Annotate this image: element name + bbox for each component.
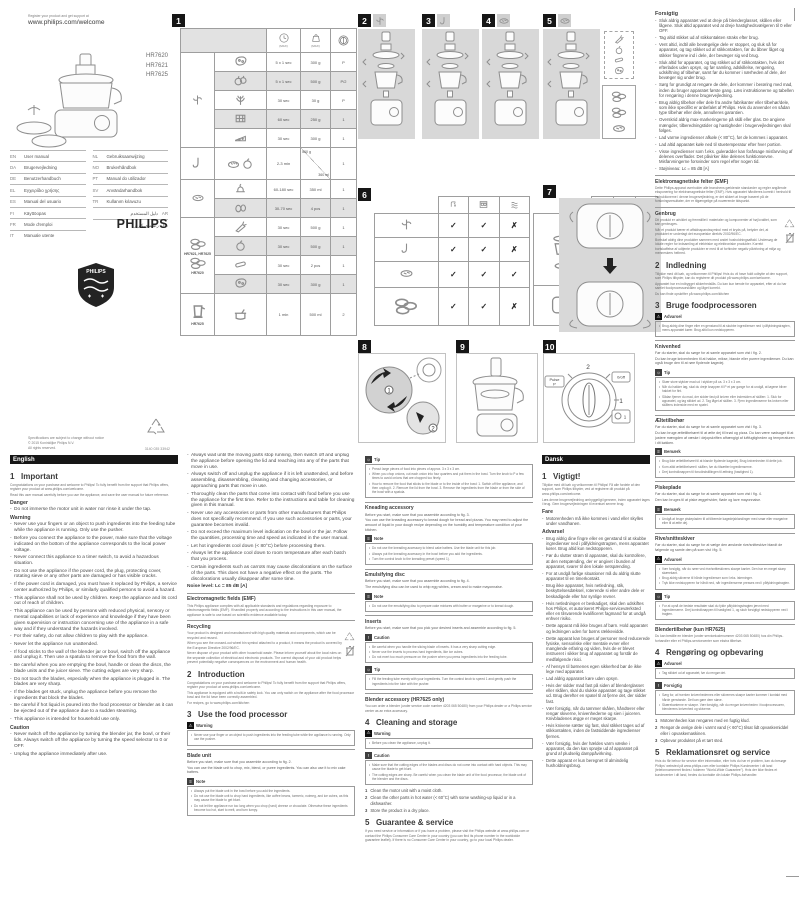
figure-2-badge: 2 xyxy=(358,14,371,27)
warning-item: This appliance shall not be used by chil… xyxy=(10,596,178,608)
inserts-heading: Inserts xyxy=(365,615,533,625)
vigtigt-intro-1: Tillykke med dit køb og velkommen til Ph… xyxy=(542,483,650,496)
table-row: HR7621, HR7625 HR7620 30 sec 500 g 1 xyxy=(181,218,357,237)
cucumber-icon xyxy=(234,258,247,271)
speed-cell: 1 xyxy=(331,180,357,199)
manual-page: { "meta": { "register_line": "Register y… xyxy=(0,0,802,904)
caution-item: Never use any accessories or parts from … xyxy=(187,511,355,529)
processing-time-header: (MAX) xyxy=(267,29,301,53)
step: 1Clean the motor unit with a moist cloth… xyxy=(365,788,533,793)
bruge-heading: 3Bruge foodprocessoren xyxy=(655,301,795,310)
speed-cell: 1 xyxy=(331,218,357,237)
genbrug-p2: Når et produkt bærer et affaldsspandssym… xyxy=(655,228,795,237)
amount-cell: 500 g xyxy=(301,237,331,256)
blendertilbehor-heading: Blendertilbehør (kun HR7625) xyxy=(655,624,795,634)
blade-icon xyxy=(400,218,413,231)
meat-icon xyxy=(234,55,247,68)
caution-list: Make sure that the cutting edges of the … xyxy=(369,763,529,781)
vigtigt-intro-2: Læs denne brugervejledning omhyggeligt i… xyxy=(542,498,650,507)
section-number: 4 xyxy=(365,718,376,727)
rengoring-heading: 4Rengøring og opbevaring xyxy=(655,648,795,657)
advarsel-box: ⚠Advarsel Vær forsigtig, når du rører ve… xyxy=(655,556,795,590)
discs-icon xyxy=(393,296,419,316)
blender-accessory-heading: Blender accessory (HR7625 only) xyxy=(365,693,533,703)
emulsifying-p1: Before you start, make sure that you ass… xyxy=(365,579,533,584)
caution-icon: ! xyxy=(365,634,372,641)
language-code: FR xyxy=(10,222,24,227)
warning-item: Never use your finger or an object to pu… xyxy=(191,733,351,741)
emf-da-text: Dette Philips-apparat overholder alle br… xyxy=(655,186,795,204)
english-column-2: Always wait until the moving parts stop … xyxy=(187,453,355,900)
introduction-p2: This appliance is equipped with a built-… xyxy=(187,691,355,700)
fare-heading: Fare xyxy=(542,509,650,515)
advarsel-item: Hvis der sidder mad fast på siden af ble… xyxy=(542,683,650,704)
cloth-icon xyxy=(510,200,519,209)
language-label: Kullanım kılavuzu xyxy=(107,199,169,204)
tap-water-header xyxy=(438,197,468,214)
advarsel-item: Vær forsigtig, når du rører ved rive/sni… xyxy=(659,567,791,575)
empty-cell xyxy=(375,197,439,214)
document-number: 3140 035 33942 xyxy=(118,447,170,451)
amount-cell: 300 g xyxy=(301,275,331,294)
crossed-bin-icon xyxy=(345,645,355,657)
note-item: Do not let the appliance run too long wh… xyxy=(191,804,351,812)
language-code: AR xyxy=(162,211,168,217)
bemaerk-item: Kom altid æltetilbehøret i skålen, før d… xyxy=(659,465,791,469)
quantity-table: (MAX) (MAX) 5 x 1 sec 300 g P 5 x 1 sec … xyxy=(180,28,357,336)
forsigtig-item: Sluk altid for apparatet, og tag stikket… xyxy=(655,60,795,81)
note-icon: ≡ xyxy=(655,448,662,455)
box-label: Note xyxy=(374,594,383,599)
dough-icon xyxy=(241,157,254,170)
section-title: Bruge foodprocessoren xyxy=(666,301,757,310)
language-code: NO xyxy=(93,165,107,170)
advarsel-list: Brug aldrig dine fingre eller en genstan… xyxy=(542,536,650,769)
box-label: Bemærk xyxy=(664,449,681,454)
discs-cell xyxy=(375,288,439,326)
warning-icon: ⚠ xyxy=(365,730,372,737)
advarsel-item: Hvis netledningen er beskadiget, skal de… xyxy=(542,601,650,622)
language-code: ES xyxy=(10,199,24,204)
language-row: FRMode d'emploi xyxy=(10,218,86,229)
eggs-icon xyxy=(234,201,247,214)
disc-insert-step-icon xyxy=(608,90,630,103)
language-label: Brukerhåndbok xyxy=(107,165,169,170)
indledning-p1: Tillykke med dit køb, og velkommen til P… xyxy=(655,272,795,281)
step: 3Store the product in a dry place. xyxy=(365,808,533,813)
caution-heading: Caution xyxy=(10,725,178,731)
food-icon-cell xyxy=(215,180,267,199)
forsigtig-item: Brug aldrig tilbehør eller dele fra andr… xyxy=(655,100,795,116)
warning-item: Be careful when you are emptying the bow… xyxy=(10,663,178,675)
advarsel-box: ⚠Advarsel Tag stikket ud af apparatet, f… xyxy=(655,660,795,679)
blendertilbehor-text: Du kan bestille en blender (under servic… xyxy=(655,634,795,643)
box-label: Tip xyxy=(374,667,380,672)
herbs-icon xyxy=(234,93,247,106)
blade-unit-group-cell xyxy=(181,53,215,148)
tip-item: How to remove the food that sticks to th… xyxy=(369,482,529,495)
language-code: DA xyxy=(10,165,24,170)
kneading-hook-icon xyxy=(400,242,413,255)
language-code: SV xyxy=(93,188,107,193)
section-title: Important xyxy=(21,472,58,481)
warning-item: This appliance is intended for household… xyxy=(10,717,178,723)
food-icon-cell xyxy=(215,237,267,256)
speed-cell: P xyxy=(331,91,357,110)
box-label: Note xyxy=(196,779,205,784)
note-item: Do not use the emulsifying disc to prepa… xyxy=(369,604,529,608)
speed-cell: 1 xyxy=(331,256,357,275)
aelte-heading: Æltetilbehør xyxy=(655,415,795,425)
food-icon-cell xyxy=(215,110,267,129)
tip-item: Når du hakker løg, skal du dreje knappen… xyxy=(659,385,791,393)
assembly-blade-diagram xyxy=(358,29,415,139)
speed-cell: 1 xyxy=(331,275,357,294)
time-cell: 30 sec xyxy=(267,218,301,237)
forsigtig-item: Tag altid stikket ud af stikkontakten st… xyxy=(655,35,795,40)
blender-group-cell: HR7625 xyxy=(181,294,215,336)
time-cell: 1 min xyxy=(267,294,301,336)
copyright-block: Specifications are subject to change wit… xyxy=(28,436,128,450)
carrot-icon xyxy=(614,34,624,44)
tip-item: When you chop onions, cut each onion int… xyxy=(369,472,529,480)
tip-item: Precut large pieces of food into pieces … xyxy=(369,467,529,471)
amount-cell: 500 g xyxy=(301,218,331,237)
tip-item: For at opnå de bedste resultater skal du… xyxy=(659,604,791,617)
knivenhed-p2: Du kan bruge knivenheden til at hakke, m… xyxy=(655,357,795,366)
emulsifying-chip xyxy=(497,14,510,27)
discs-model-label: HR7620 xyxy=(181,271,214,275)
time-cell: 5 x 1 sec xyxy=(267,72,301,91)
warning-item: Never use your fingers or an object to p… xyxy=(10,522,178,534)
warning-list: Before you clean the appliance, unplug i… xyxy=(369,741,529,745)
recycling-block: Your product is designed and manufacture… xyxy=(187,631,355,664)
recycling-p1: Your product is designed and manufacture… xyxy=(187,631,355,640)
section-number: 5 xyxy=(365,818,376,827)
bemaerk-item: Brug ikke æltetilbehøret til at blande f… xyxy=(659,459,791,463)
figure-9-badge: 9 xyxy=(456,340,469,353)
use-heading: 3Use the food processor xyxy=(187,710,355,719)
speed-cell: P/2 xyxy=(331,72,357,91)
amount-header: (MAX) xyxy=(301,29,331,53)
advarsel-item: Dette apparat må ikke bruges af børn. Ho… xyxy=(542,623,650,633)
note-item: Always put the blade unit in the bowl be… xyxy=(191,789,351,793)
food-icon-cell xyxy=(215,256,267,275)
advarsel-item: Brug ikke apparatet, hvis netledning, st… xyxy=(542,583,650,599)
section-number: 2 xyxy=(655,261,666,270)
caution-item: Be careful when you handle the slicing b… xyxy=(369,645,529,649)
warning-item: If the power cord is damaged, you must h… xyxy=(10,582,178,594)
advarsel-item: Vær forsigtig, hvis der hældes varm væsk… xyxy=(542,741,650,757)
step: 3Opbevar produktet på et tørt sted. xyxy=(655,738,795,743)
note-box: ≡Note Always put the blade unit in the b… xyxy=(187,778,355,816)
cheese-icon xyxy=(614,66,624,76)
mark-cell: ✓ xyxy=(469,238,499,262)
assembly-inserts-diagram xyxy=(543,29,600,139)
step-text: Clean the other parts in hot water (< 60… xyxy=(370,795,533,806)
figure-3-panel xyxy=(422,29,479,139)
introduction-heading: 2Introduction xyxy=(187,670,355,679)
recycling-p2: When you see the crossed-out wheel bin s… xyxy=(187,641,355,650)
recycling-heading: Recycling xyxy=(187,620,355,630)
danger-heading: Danger xyxy=(10,500,178,506)
off-label-box: 0/off xyxy=(612,372,630,382)
language-row: DEBenutzerhandbuch xyxy=(10,173,86,184)
caution-item: Always wait until the moving parts stop … xyxy=(187,453,355,471)
advarsel-item: Af hensyn til børnenes egen sikkerhed bø… xyxy=(542,664,650,674)
warning-icon: ⚠ xyxy=(655,556,662,563)
weight-icon xyxy=(311,33,321,43)
crossed-bin-icon xyxy=(785,232,795,244)
note-list: Always put the blade unit in the bowl be… xyxy=(191,789,351,812)
potato-icon xyxy=(614,45,624,55)
section-title: Guarantee & service xyxy=(376,818,453,827)
caution-item: Do not exceed the maximum level indicati… xyxy=(187,530,355,542)
indledning-heading: 2Indledning xyxy=(655,261,795,270)
speed-cell: 1 xyxy=(331,148,357,180)
advarsel-list: Vær forsigtig, når du rører ved rive/sni… xyxy=(659,567,791,586)
discs-icon xyxy=(189,237,207,251)
note-box: ≡Note Do not use the kneading accessory … xyxy=(365,535,533,565)
forsigtig-item: Sørg for, at hverken knivenhedernes elle… xyxy=(659,693,791,701)
box-label: Warning xyxy=(374,731,391,736)
tip-icon: ☼ xyxy=(655,369,662,376)
emf-text: This Philips appliance complies with all… xyxy=(187,604,355,617)
mark-cell: ✓ xyxy=(469,262,499,288)
pulse-label-box: Pulse P xyxy=(545,376,564,387)
shield-brand-text: PHILIPS xyxy=(86,269,106,275)
language-label: Käyttöopas xyxy=(24,211,86,216)
time-cell: 30 sec xyxy=(267,275,301,294)
caution-item: Unplug the appliance immediately after u… xyxy=(10,752,178,758)
section-title: Use the food processor xyxy=(198,710,287,719)
caution-continued-list: Always wait until the moving parts stop … xyxy=(187,453,355,582)
warning-item: This appliance can be used by persons wi… xyxy=(10,609,178,632)
register-block: Register your product and get support at… xyxy=(28,14,168,26)
forsigtig-heading: Forsigtig xyxy=(655,11,795,17)
table-row: HR7625 1 min 500 ml 2 xyxy=(181,294,357,336)
knivenhed-heading: Knivenhed xyxy=(655,340,795,350)
note-icon: ≡ xyxy=(655,506,662,513)
piske-heading: Piskeplade xyxy=(655,481,795,491)
language-code: DE xyxy=(10,176,24,181)
time-cell: 60 sec xyxy=(267,110,301,129)
mark-cell: ✓ xyxy=(438,288,468,326)
caution-item: The cutting edges are sharp. Be careful … xyxy=(369,773,529,781)
advarsel-list: Brug aldrig dine fingre eller en genstan… xyxy=(659,324,791,332)
forsigtig-item: Lad varme ingredienser afkøle (< 80°C), … xyxy=(655,135,795,140)
blade-icon xyxy=(190,94,205,106)
step-text: Motorenheden kan rengøres med en fugtig … xyxy=(660,718,749,723)
section-number: 2 xyxy=(187,670,198,679)
section-number: 3 xyxy=(187,710,198,719)
warning-icon: ⚠ xyxy=(655,660,662,667)
figure-6-badge: 6 xyxy=(358,188,371,201)
forsigtig-list: Sluk aldrig apparatet ved at dreje på bl… xyxy=(655,18,795,172)
advarsel-heading: Advarsel xyxy=(542,529,650,535)
forsigtig-item: Sørg for grundigt at rengøre de dele, de… xyxy=(655,82,795,98)
recycle-icon xyxy=(146,416,166,436)
discs-group-cell: HR7621, HR7625 HR7620 xyxy=(181,218,215,294)
advarsel-item: Lad aldrig apparatet køre uden opsyn. xyxy=(542,676,650,681)
amount-cell: 350 ml xyxy=(301,180,331,199)
emulsifying-cell xyxy=(375,262,439,288)
amount-cell: 500 ml xyxy=(301,294,331,336)
cloth-header xyxy=(499,197,529,214)
amount-cell: 30 g xyxy=(301,91,331,110)
crop-mark xyxy=(786,876,799,877)
crop-mark xyxy=(794,8,795,21)
table-row: 2-3 min 500 g 360 ml 1 xyxy=(181,148,357,180)
box-label: Tip xyxy=(374,457,380,462)
forsigtig-item: Visse ingredienser som f.eks. gulerødder… xyxy=(655,149,795,165)
figure-5-panel xyxy=(543,29,600,139)
caution-item: Never switch off the appliance by turnin… xyxy=(10,732,178,750)
language-label: Manual do utilizador xyxy=(107,176,169,181)
warning-item: Never let the appliance run unattended. xyxy=(10,642,178,648)
section-title: Rengøring og opbevaring xyxy=(666,648,763,657)
vigtigt-heading: 1Vigtigt! xyxy=(542,472,650,481)
step-number: 1 xyxy=(655,718,657,723)
box-label: Advarsel xyxy=(664,557,682,562)
danger-list: Do not immerse the motor unit in water n… xyxy=(10,507,178,513)
note-icon: ≡ xyxy=(365,535,372,542)
disc-insert-step-icon xyxy=(608,106,630,119)
emulsifying-heading: Emulsifying disc xyxy=(365,569,533,579)
weight-max-label: (MAX) xyxy=(301,44,330,48)
inserts-p1: Before you start, make sure that you pic… xyxy=(365,626,533,631)
bemaerk-box: ≡Bemærk Brug ikke æltetilbehøret til at … xyxy=(655,448,795,478)
warning-item: For their safety, do not allow children … xyxy=(10,634,178,640)
genbrug-block: Dit produkt er udviklet og fremstillet i… xyxy=(655,218,795,256)
inserts-chip xyxy=(558,14,571,27)
food-icon-cell xyxy=(215,294,267,336)
lid-lock-diagram: 1 2 xyxy=(359,354,445,442)
section-number: 1 xyxy=(542,472,553,481)
food-icon-cell xyxy=(215,91,267,110)
amount-cell: 4 pcs xyxy=(301,199,331,218)
caution-item: Let hot ingredients cool down (< 80°C) b… xyxy=(187,544,355,550)
discs-icon xyxy=(189,256,207,270)
kneading-cell xyxy=(375,238,439,262)
warning-heading: Warning xyxy=(10,515,178,521)
piske-p1: Før du starter, skal du sørge for at sam… xyxy=(655,492,795,497)
tip-box: ☼Tip For at opnå de bedste resultater sk… xyxy=(655,593,795,621)
caution-item: Do not exert too much pressure on the pu… xyxy=(369,655,529,659)
language-label: Manual del usuario xyxy=(24,199,86,204)
register-url: www.philips.com/welcome xyxy=(28,19,168,26)
bemaerk-box: ≡Bemærk Undgå at bruge piskepladen til a… xyxy=(655,506,795,529)
warning-item: Do not touch the blades, especially when… xyxy=(10,677,178,689)
caution-icon: ! xyxy=(365,752,372,759)
time-max-label: (MAX) xyxy=(267,44,300,48)
amount-cell: 250 g xyxy=(301,110,331,129)
step-text: Opbevar produktet på et tørt sted. xyxy=(660,738,723,743)
food-icon-cell xyxy=(215,72,267,91)
tip-list: Skær store stykker mad ud i stykker på c… xyxy=(659,380,791,407)
amount-cell: 300 g xyxy=(301,129,331,148)
genbrug-p3: Bortskaf aldrig dine produkter sammen me… xyxy=(655,238,795,256)
box-label: Advarsel xyxy=(664,661,682,666)
english-column-3: ☼Tip Precut large pieces of food into pi… xyxy=(365,453,533,900)
english-section-bar: English xyxy=(10,455,178,464)
genbrug-p1: Dit produkt er udviklet og fremstillet i… xyxy=(655,218,795,227)
language-label: Användarhandbok xyxy=(107,188,169,193)
blade-unit-cell xyxy=(375,214,439,238)
rive-p1: Før du starter, skal du sørge for at væl… xyxy=(655,543,795,552)
tip-icon: ☼ xyxy=(365,666,372,673)
important-heading: 1Important xyxy=(10,472,178,481)
language-row: ELΕγχειρίδιο χρήσης xyxy=(10,184,86,195)
section-title: Indledning xyxy=(666,261,706,270)
time-cell: 30 sec xyxy=(267,129,301,148)
language-code: EL xyxy=(10,188,24,193)
note-list: Do not use the kneading accessory to ble… xyxy=(369,546,529,561)
mark-cell: ✓ xyxy=(438,262,468,288)
section-title: Vigtigt! xyxy=(553,472,580,481)
cleaning-row: ✓ ✓ ✗ xyxy=(375,238,530,262)
insert-disc-icon xyxy=(560,16,570,26)
section-number: 4 xyxy=(655,648,666,657)
section-title: Cleaning and storage xyxy=(376,718,457,727)
language-row: SVAnvändarhandbok xyxy=(93,184,169,195)
food-icon-cell xyxy=(215,129,267,148)
rights-line: All rights reserved. xyxy=(28,446,128,451)
recycle-icon xyxy=(344,631,355,642)
bread-icon xyxy=(227,157,240,170)
language-code: IT xyxy=(10,233,24,238)
step: 2Rengør de øvrige dele i varmt vand (< 6… xyxy=(655,725,795,736)
section-number: 3 xyxy=(655,301,666,310)
language-row: NLGebruiksaanwijzing xyxy=(93,150,169,161)
cleaning-row: ✓ ✓ ✗ xyxy=(375,214,530,238)
knivenhed-p1: Før du starter, skal du sørge for at sam… xyxy=(655,351,795,356)
language-row: DABrugervejledning xyxy=(10,161,86,172)
figure-9-panel xyxy=(456,353,538,443)
forsigtig-list: Sørg for, at hverken knivenhedernes elle… xyxy=(659,693,791,711)
introduction-p1: Congratulations on your purchase and wel… xyxy=(187,681,355,690)
fare-list: Motorenheden må ikke kommes i vand eller… xyxy=(542,516,650,526)
warning-icon: ⚠ xyxy=(187,722,194,729)
mark-cell: ✗ xyxy=(499,214,529,238)
emulsifying-group-cell xyxy=(181,180,215,218)
tip-item: Sådan fjerner du mad, der sidder fast på… xyxy=(659,395,791,408)
warning-item: Before you connect the appliance to the … xyxy=(10,536,178,554)
emulsifying-disc-icon xyxy=(190,192,206,204)
advarsel-item: Dette apparat kan bruges af personer med… xyxy=(542,636,650,662)
tip-list: Fill the feeding tube evenly with your i… xyxy=(369,677,529,685)
blade-icon xyxy=(375,16,385,26)
section-title: Reklamationsret og service xyxy=(666,748,770,757)
blade-chip xyxy=(373,14,386,27)
language-code: FI xyxy=(10,211,24,216)
dishwasher-icon xyxy=(479,200,488,209)
time-cell: 2-3 min xyxy=(267,148,301,180)
step-number: 1 xyxy=(365,788,367,793)
note-item: Turn the control knob to the kneading pr… xyxy=(369,557,529,561)
important-intro-2: Read this user manual carefully before y… xyxy=(10,493,178,497)
kneading-hook-icon xyxy=(191,156,205,170)
tap-icon xyxy=(449,200,458,209)
figure-8-badge: 8 xyxy=(358,340,371,353)
language-label: Mode d'emploi xyxy=(24,222,86,227)
language-list-right-main: NLGebruiksaanwijzingNOBrukerhåndbokPTMan… xyxy=(93,150,169,207)
speed-dial-diagram: 2 1 Pulse P 0/off 1 xyxy=(544,354,634,442)
note-item: Do not use the blade unit to chop hard i… xyxy=(191,794,351,802)
service-da-heading: 5Reklamationsret og service xyxy=(655,748,795,757)
figure-4-panel xyxy=(482,29,539,139)
assembly-kneading-diagram xyxy=(422,29,479,139)
